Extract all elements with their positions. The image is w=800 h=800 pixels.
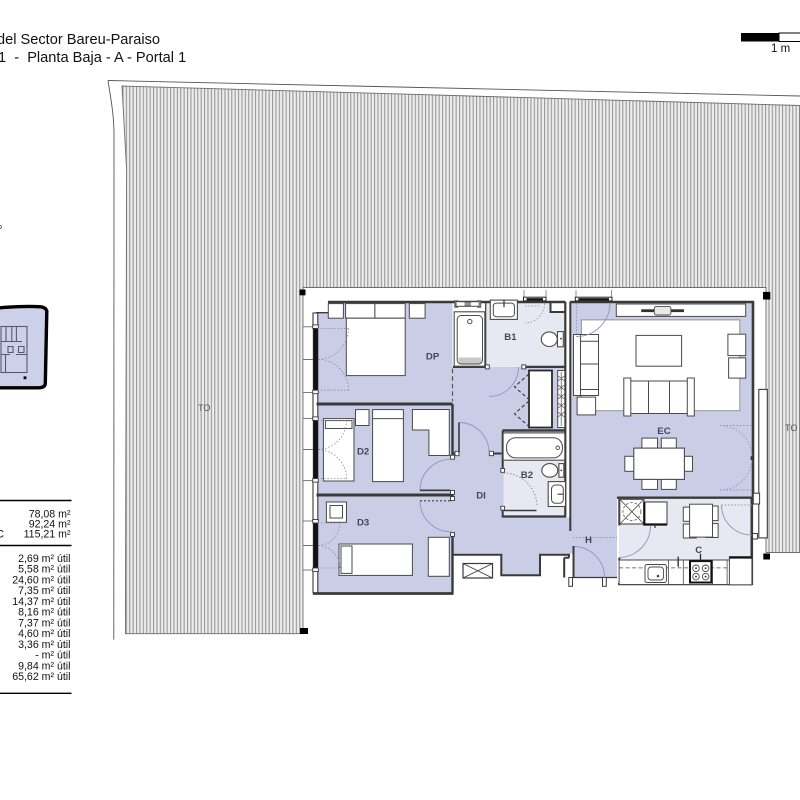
svg-text:TO: TO [198, 403, 210, 413]
svg-text:o: o [0, 224, 2, 231]
svg-text:DI: DI [476, 491, 486, 502]
svg-text:DP: DP [426, 352, 440, 363]
svg-text:H: H [585, 535, 592, 546]
svg-text:C: C [0, 528, 4, 540]
svg-text:B2: B2 [521, 470, 533, 481]
svg-text:D3: D3 [357, 518, 369, 529]
svg-text:1 - Planta Baja - A - Portal: 1 - Planta Baja - A - Portal 1 [0, 50, 186, 66]
svg-text:EC: EC [657, 426, 670, 437]
svg-text:115,21 m²: 115,21 m² [24, 528, 71, 540]
svg-text:65,62 m² útil: 65,62 m² útil [12, 671, 70, 683]
svg-text:C: C [695, 545, 702, 556]
svg-text:B1: B1 [504, 332, 517, 343]
svg-text:1 m: 1 m [771, 43, 790, 55]
svg-text:D2: D2 [357, 447, 369, 458]
svg-text:TO: TO [785, 423, 797, 433]
svg-text:del Sector Bareu-Paraiso: del Sector Bareu-Paraiso [0, 32, 160, 48]
